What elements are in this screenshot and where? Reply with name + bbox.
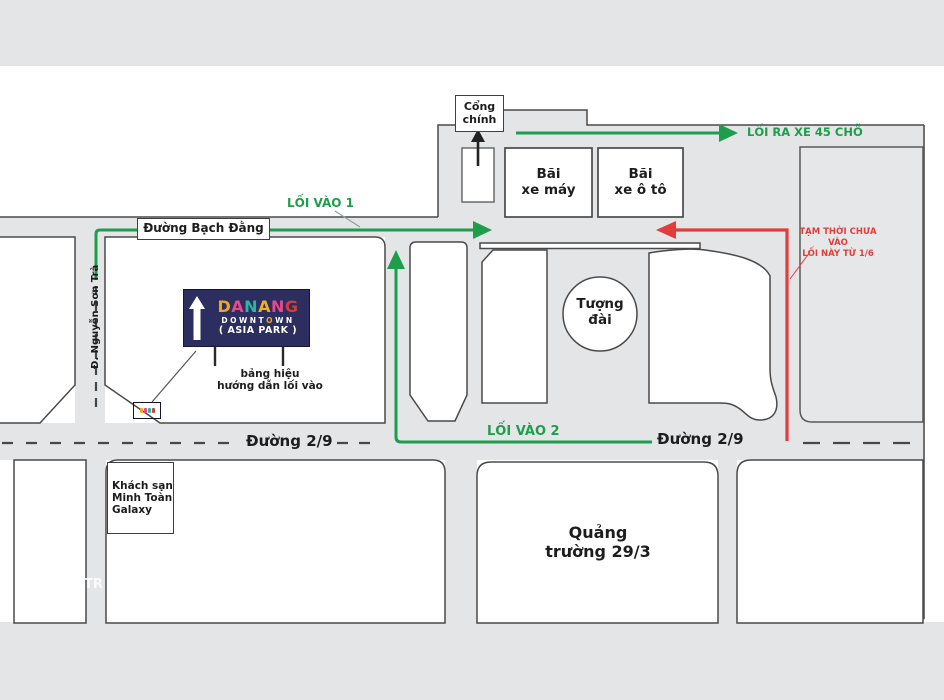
curb-strip — [480, 243, 700, 249]
square-label: Quảng trường 29/3 — [528, 524, 668, 562]
monument-label: Tượng đài — [563, 297, 637, 329]
block-sw — [14, 460, 86, 623]
billboard-letter: A — [231, 297, 244, 316]
entrance2-label: LỐI VÀO 2 — [487, 424, 560, 439]
block-se — [737, 460, 923, 623]
billboard-letter: W — [275, 316, 286, 325]
billboard-letter: N — [286, 316, 295, 325]
nguyen-son-tra-street-label: Đ. Nguyễn Sơn Trà — [90, 257, 102, 377]
entrance1-label: LỐI VÀO 1 — [287, 196, 354, 210]
bach-dang-street-label: Đường Bạch Đằng — [137, 218, 270, 240]
block-west — [0, 237, 75, 423]
block-mid-right — [649, 249, 777, 420]
billboard-title: DANANG — [209, 299, 307, 315]
billboard-up-arrow-icon — [189, 296, 205, 340]
closed-route-note: TẠM THỜI CHƯA VÀO LỐI NÀY TỪ 1/6 — [790, 227, 886, 260]
billboard-letter: W — [239, 316, 250, 325]
billboard-letter: O — [230, 316, 239, 325]
street-29-label-right: Đường 2/9 — [657, 431, 744, 449]
car-parking-label: Bãi xe ô tô — [598, 148, 683, 217]
billboard-letter: D — [218, 297, 232, 316]
street-29-label-left: Đường 2/9 — [246, 433, 333, 451]
billboard-park-line: ( ASIA PARK ) — [209, 326, 307, 336]
billboard-letter: G — [285, 297, 299, 316]
block-mid-left — [482, 250, 547, 403]
billboard: DANANG DOWNTOWN ( ASIA PARK ) — [183, 289, 310, 347]
block-narrow — [410, 242, 467, 421]
exit-bus-label: LỐI RA XE 45 CHỖ — [747, 126, 863, 140]
main-gate-label: Cổng chính — [455, 95, 504, 132]
billboard-letter: O — [266, 316, 275, 325]
hotel-label: Khách sạn Minh Toàn Galaxy — [107, 462, 174, 534]
moto-parking-label: Bãi xe máy — [505, 148, 592, 217]
billboard-letter: A — [258, 297, 271, 316]
direction-map: Cổng chính LỐI RA XE 45 CHỖ Bãi xe máy B… — [0, 0, 944, 700]
billboard-letter: N — [271, 297, 285, 316]
billboard-letter: D — [221, 316, 230, 325]
billboard-letter: N — [250, 316, 259, 325]
watermark-text: TR — [84, 577, 103, 592]
parcel-east — [800, 147, 923, 422]
billboard-caption: bảng hiệu hướng dẫn lối vào — [195, 368, 345, 393]
mini-billboard — [133, 402, 161, 419]
billboard-letter: N — [244, 297, 258, 316]
